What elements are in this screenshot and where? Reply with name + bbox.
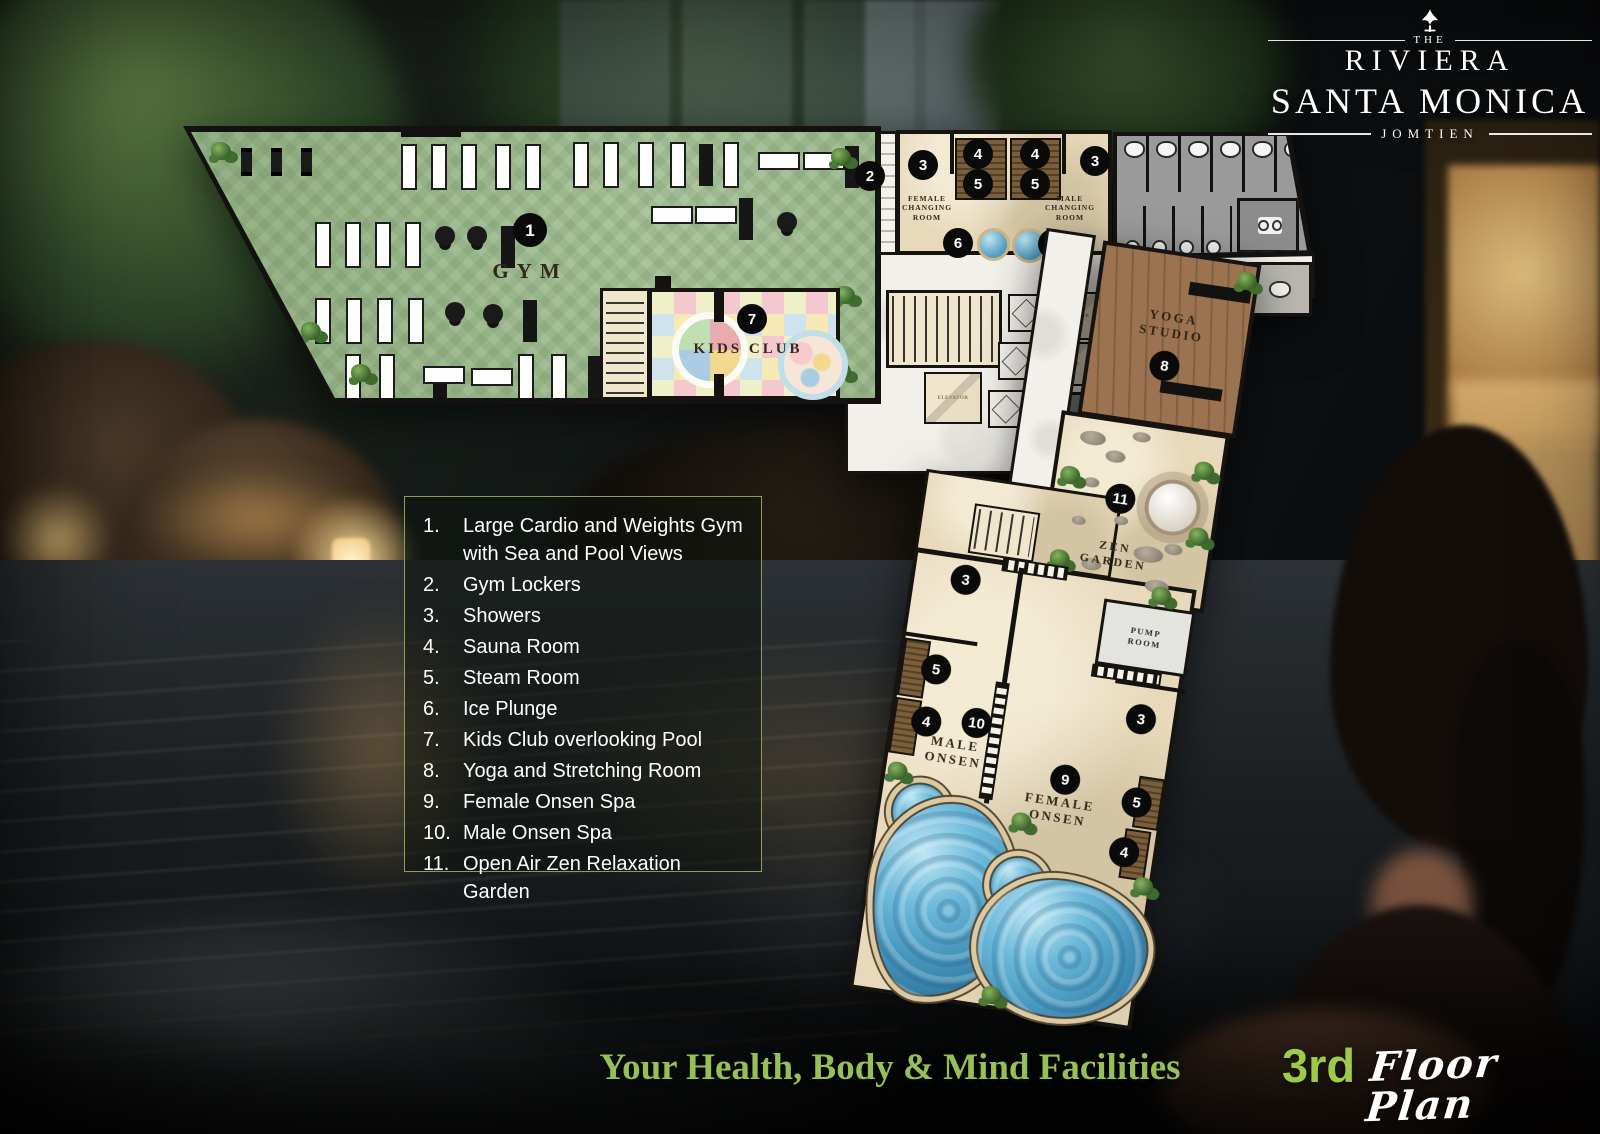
- stone-icon: [1132, 431, 1151, 444]
- gym-equipment-icon: [345, 222, 361, 268]
- gym-equipment-icon: [241, 148, 252, 176]
- page: THE RIVIERA SANTA MONICA JOMTIEN GYM: [0, 0, 1600, 1134]
- gym-equipment-icon: [573, 142, 589, 188]
- stone-icon: [1105, 449, 1127, 464]
- logo-riviera: RIVIERA: [1268, 44, 1592, 78]
- floor-number: 3rd: [1282, 1042, 1355, 1089]
- gym-equipment-icon: [461, 144, 477, 190]
- marker-2: 2: [855, 161, 885, 191]
- toilet-icon: [1220, 141, 1241, 158]
- toilet-icon: [1269, 281, 1291, 298]
- marker-4-male-sauna: 4: [1020, 139, 1050, 169]
- legend-item: 6.Ice Plunge: [423, 695, 747, 723]
- gym-equipment-icon: [375, 222, 391, 268]
- legend-item-number: 11.: [423, 850, 463, 878]
- plant-icon: [831, 148, 851, 166]
- legend-item-number: 2.: [423, 571, 463, 599]
- female-changing-label: FEMALE CHANGING ROOM: [896, 194, 958, 222]
- gym-equipment-icon: [699, 144, 713, 186]
- restrooms-block: [1113, 132, 1313, 260]
- marker-3-male-showers: 3: [1080, 146, 1110, 176]
- footer-title: Your Health, Body & Mind Facilities: [560, 1046, 1220, 1090]
- legend-item: 4.Sauna Room: [423, 633, 747, 661]
- legend-item: 9.Female Onsen Spa: [423, 788, 747, 816]
- ice-plunge-pool-icon: [977, 228, 1010, 261]
- wall-segment: [1062, 134, 1066, 174]
- legend-item-number: 7.: [423, 726, 463, 754]
- legend-item-number: 6.: [423, 695, 463, 723]
- legend-item-label: Open Air Zen Relaxation Garden: [463, 850, 747, 906]
- legend-list: 1.Large Cardio and Weights Gym with Sea …: [423, 512, 747, 906]
- gym-equipment-icon: [523, 300, 537, 342]
- marker-4-female-sauna: 4: [963, 139, 993, 169]
- gym-equipment-icon: [471, 368, 513, 386]
- gym-equipment-icon: [377, 298, 393, 344]
- logo-rule: [1489, 133, 1592, 135]
- plant-icon: [886, 760, 908, 781]
- wall-segment: [433, 384, 447, 398]
- logo-rule: [1268, 40, 1405, 41]
- gym-equipment-icon: [271, 148, 282, 176]
- gym-equipment-icon: [401, 144, 417, 190]
- gym-equipment-icon: [315, 222, 331, 268]
- marker-8: 8: [1147, 349, 1181, 383]
- gym-equipment-icon: [467, 226, 487, 246]
- marker-3-female-onsen-showers: 3: [1124, 702, 1158, 736]
- legend-panel: 1.Large Cardio and Weights Gym with Sea …: [404, 496, 762, 872]
- legend-item-label: Steam Room: [463, 664, 580, 692]
- toilet-icon: [1284, 141, 1305, 158]
- plant-icon: [301, 322, 321, 340]
- logo-rule: [1268, 133, 1371, 135]
- legend-item-label: Large Cardio and Weights Gym with Sea an…: [463, 512, 747, 568]
- gym-equipment-icon: [525, 144, 541, 190]
- legend-item: 11.Open Air Zen Relaxation Garden: [423, 850, 747, 906]
- accessible-icon: [1258, 217, 1282, 234]
- gym-equipment-icon: [551, 354, 567, 400]
- pump-room-label: PUMP ROOM: [1119, 624, 1172, 652]
- stone-icon: [1164, 543, 1183, 557]
- legend-item: 3.Showers: [423, 602, 747, 630]
- accessible-wc-room: [1237, 198, 1299, 253]
- yoga-studio-label: YOGA STUDIO: [1116, 302, 1230, 350]
- legend-item-label: Male Onsen Spa: [463, 819, 612, 847]
- sink-icon: [1206, 240, 1221, 255]
- logo-santa-monica: SANTA MONICA: [1268, 80, 1592, 122]
- brand-logo: THE RIVIERA SANTA MONICA JOMTIEN: [1268, 8, 1592, 142]
- marker-5-female-steam: 5: [963, 169, 993, 199]
- marker-7: 7: [737, 304, 767, 334]
- stone-icon: [1079, 429, 1107, 447]
- bench-icon: [1159, 381, 1222, 402]
- marker-1: 1: [513, 213, 547, 247]
- gym-equipment-icon: [670, 142, 686, 188]
- gym-equipment-icon: [435, 226, 455, 246]
- wall-segment: [714, 292, 724, 322]
- legend-item-number: 10.: [423, 819, 463, 847]
- logo-rule: [1455, 40, 1592, 41]
- gym-equipment-icon: [695, 206, 737, 224]
- gym-equipment-icon: [423, 366, 465, 384]
- gym-lockers: [878, 131, 898, 255]
- gym-equipment-icon: [723, 142, 739, 188]
- stairs-icon: [968, 503, 1041, 562]
- legend-item-number: 4.: [423, 633, 463, 661]
- stairs-icon: [886, 290, 1002, 368]
- gym-equipment-icon: [408, 298, 424, 344]
- gym-equipment-icon: [518, 354, 534, 400]
- floorplan-upper-wing: GYM 1 KIDS CLUB 7 2: [0, 0, 1600, 1134]
- gym-equipment-icon: [495, 144, 511, 190]
- legend-item-label: Female Onsen Spa: [463, 788, 635, 816]
- floor-plan-script: Floor Plan: [1364, 1040, 1600, 1128]
- legend-item-label: Gym Lockers: [463, 571, 581, 599]
- gym-equipment-icon: [301, 148, 312, 176]
- gym-label: GYM: [482, 258, 578, 284]
- footer: Your Health, Body & Mind Facilities 3rd …: [0, 1028, 1600, 1118]
- stall-dividers: [1117, 136, 1302, 192]
- gym-equipment-icon: [603, 142, 619, 188]
- wall-segment: [950, 134, 954, 174]
- toilet-icon: [1124, 141, 1145, 158]
- toilet-icon: [1156, 141, 1177, 158]
- marker-3-male-onsen-showers: 3: [949, 563, 983, 597]
- kids-club-label: KIDS CLUB: [684, 340, 812, 359]
- legend-item-label: Yoga and Stretching Room: [463, 757, 701, 785]
- marker-3-female-showers: 3: [908, 150, 938, 180]
- gym-equipment-icon: [405, 222, 421, 268]
- toilet-icon: [1252, 141, 1273, 158]
- legend-item-label: Kids Club overlooking Pool: [463, 726, 702, 754]
- legend-item: 7.Kids Club overlooking Pool: [423, 726, 747, 754]
- legend-item: 2.Gym Lockers: [423, 571, 747, 599]
- elevator-cabin: ELEVATOR: [924, 372, 982, 424]
- marker-9: 9: [1048, 763, 1082, 797]
- gym-equipment-icon: [483, 304, 503, 324]
- plant-icon: [1132, 876, 1154, 897]
- gym-equipment-icon: [431, 144, 447, 190]
- legend-item-number: 3.: [423, 602, 463, 630]
- legend-item-number: 5.: [423, 664, 463, 692]
- gym-equipment-icon: [379, 354, 395, 400]
- gym-equipment-icon: [651, 206, 693, 224]
- restrooms-floor: [1117, 136, 1307, 255]
- legend-item: 5.Steam Room: [423, 664, 747, 692]
- stairs-icon: [600, 288, 650, 400]
- male-changing-label: MALE CHANGING ROOM: [1038, 194, 1102, 222]
- gym-equipment-icon: [346, 298, 362, 344]
- wall-segment: [714, 374, 724, 404]
- legend-item: 1.Large Cardio and Weights Gym with Sea …: [423, 512, 747, 568]
- legend-item-number: 9.: [423, 788, 463, 816]
- fleur-ornament-icon: [1268, 8, 1592, 34]
- plant-icon: [211, 142, 231, 160]
- stone-icon: [1083, 476, 1100, 488]
- legend-item: 10.Male Onsen Spa: [423, 819, 747, 847]
- gym-equipment-icon: [777, 212, 797, 232]
- gym-equipment-icon: [445, 302, 465, 322]
- toilet-icon: [1188, 141, 1209, 158]
- yoga-studio-room: YOGA STUDIO 8: [1077, 240, 1261, 438]
- legend-item-label: Sauna Room: [463, 633, 580, 661]
- logo-jomtien: JOMTIEN: [1381, 126, 1479, 142]
- legend-item: 8.Yoga and Stretching Room: [423, 757, 747, 785]
- gym-equipment-icon: [739, 198, 753, 240]
- legend-item-label: Ice Plunge: [463, 695, 558, 723]
- marker-6-ice-plunge: 6: [943, 228, 973, 258]
- marker-5-male-steam: 5: [1020, 169, 1050, 199]
- gym-equipment-icon: [638, 142, 654, 188]
- legend-item-label: Showers: [463, 602, 541, 630]
- gym-equipment-icon: [758, 152, 800, 170]
- plant-icon: [351, 364, 371, 382]
- legend-item-number: 1.: [423, 512, 463, 540]
- legend-item-number: 8.: [423, 757, 463, 785]
